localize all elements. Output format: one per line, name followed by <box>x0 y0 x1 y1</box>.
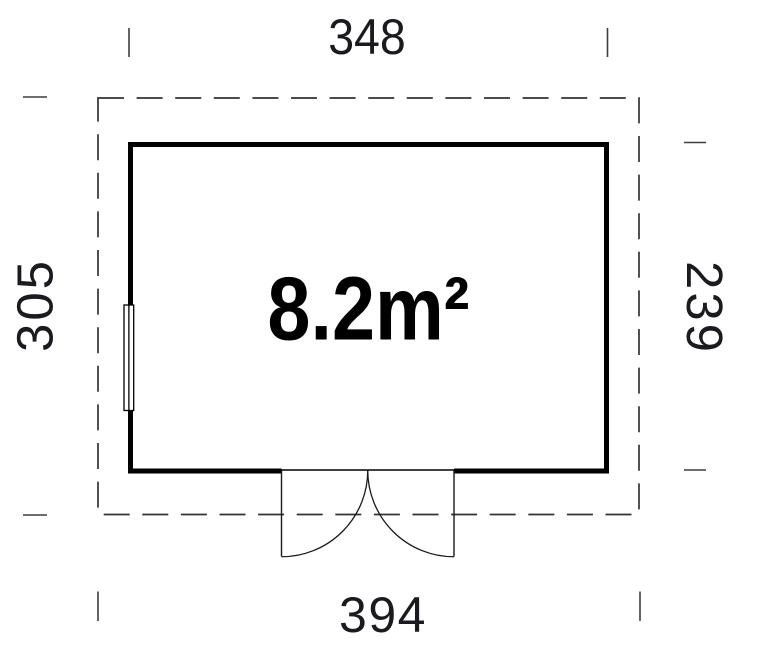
svg-text:394: 394 <box>339 587 427 643</box>
svg-text:8.2m²: 8.2m² <box>267 258 469 359</box>
svg-text:305: 305 <box>6 258 63 352</box>
svg-text:239: 239 <box>676 261 733 355</box>
svg-text:348: 348 <box>328 9 406 65</box>
